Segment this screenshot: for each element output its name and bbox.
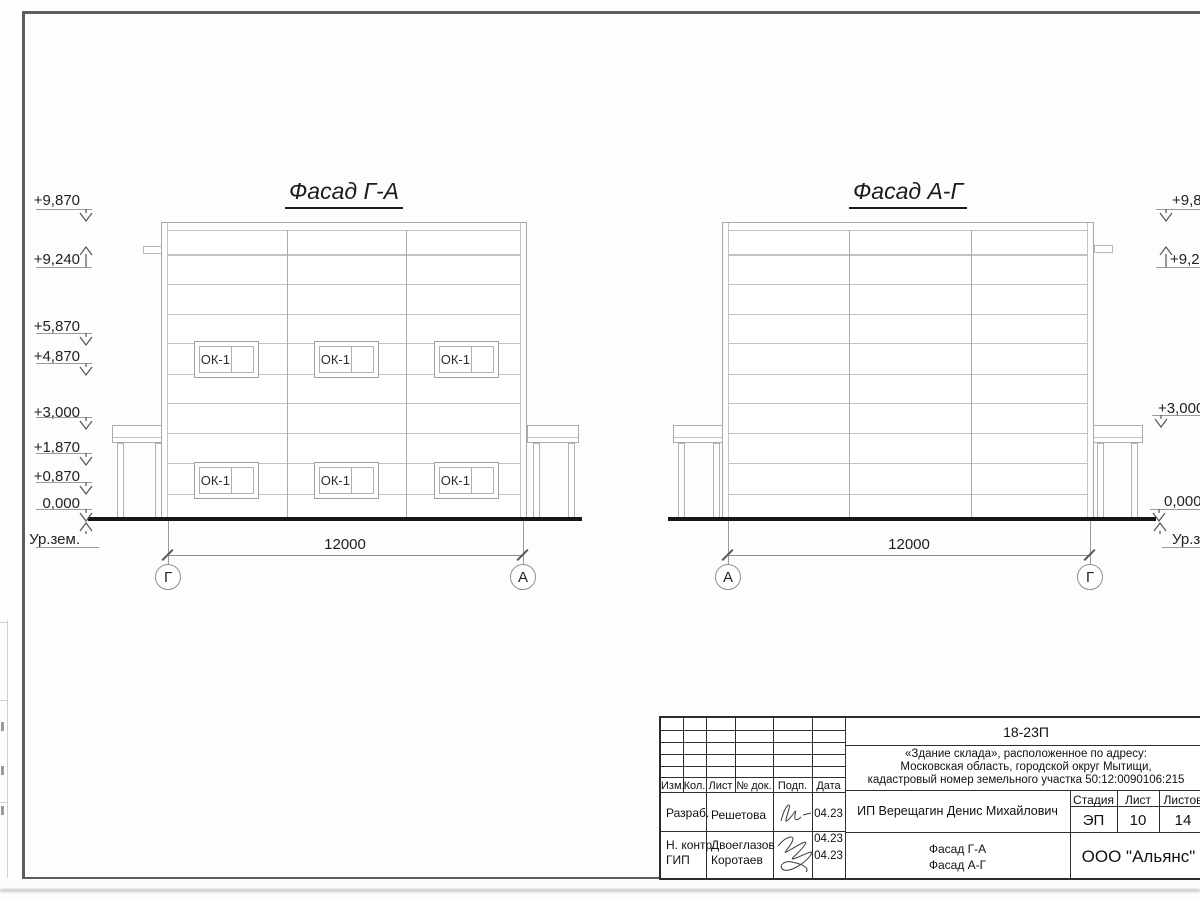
elevation-arrow-down-icon bbox=[1151, 509, 1167, 522]
bay-divider bbox=[971, 230, 972, 518]
wall-edge-line bbox=[1087, 223, 1088, 518]
project-code: 18-23П bbox=[845, 724, 1200, 740]
title-block-line bbox=[845, 745, 1200, 746]
sheet-name-line1: Фасад Г-А bbox=[845, 842, 1070, 856]
title-block-line bbox=[661, 766, 845, 767]
window-label: ОК-1 bbox=[320, 347, 351, 372]
title-block-line bbox=[661, 777, 845, 778]
margin-stamp-line bbox=[0, 622, 8, 623]
elevation-label: 0,000 bbox=[1164, 493, 1200, 510]
col-header-list: Лист bbox=[706, 780, 735, 792]
window-mullion bbox=[471, 347, 472, 372]
elevation-label: Ур.зем. bbox=[1172, 531, 1200, 548]
dimension-text: 12000 bbox=[859, 536, 959, 553]
axis-line bbox=[168, 521, 169, 564]
stage-label: Стадия bbox=[1070, 793, 1117, 807]
title-block-line bbox=[661, 730, 845, 731]
window-label: ОК-1 bbox=[440, 468, 471, 493]
porch-post bbox=[568, 443, 575, 519]
facade-wall-ag bbox=[722, 222, 1094, 519]
col-header-izm: Изм. bbox=[661, 780, 683, 792]
window-mullion bbox=[231, 468, 232, 493]
axis-letter: Г bbox=[1086, 569, 1094, 586]
role-name: Коротаев bbox=[711, 853, 763, 867]
panel-line bbox=[728, 463, 1088, 464]
dimension-line bbox=[168, 555, 523, 556]
axis-circle: Г bbox=[155, 564, 181, 590]
elevation-label: Ур.зем. bbox=[18, 531, 80, 548]
panel-line bbox=[728, 494, 1088, 495]
panel-line bbox=[167, 433, 521, 434]
window: ОК-1 bbox=[314, 462, 379, 499]
role-label: ГИП bbox=[666, 853, 690, 867]
panel-line bbox=[728, 374, 1088, 375]
panel-line bbox=[167, 314, 521, 315]
entrance-canopy bbox=[673, 425, 724, 443]
facade-title-ag: Фасад А-Г bbox=[808, 178, 1008, 209]
wall-edge-line bbox=[520, 223, 521, 518]
client-name: ИП Верещагин Денис Михайлович bbox=[845, 804, 1070, 818]
elevation-arrow-down-icon bbox=[78, 509, 94, 522]
elevation-arrow-down-icon bbox=[78, 363, 94, 376]
organization-name: ООО "Альянс" bbox=[1070, 847, 1200, 867]
window: ОК-1 bbox=[194, 462, 259, 499]
facade-title-ga: Фасад Г-А bbox=[244, 178, 444, 209]
elevation-label: +9,240 bbox=[1170, 251, 1200, 268]
axis-line bbox=[728, 521, 729, 564]
eaves-line bbox=[728, 254, 1088, 256]
window-label: ОК-1 bbox=[200, 468, 231, 493]
panel-line bbox=[167, 403, 521, 404]
elevation-leader bbox=[36, 547, 99, 548]
title-block-line bbox=[661, 742, 845, 743]
porch-post bbox=[1097, 443, 1104, 519]
porch-post bbox=[713, 443, 720, 519]
paper-edge-shadow bbox=[0, 889, 1200, 892]
elevation-label: +9,870 bbox=[1172, 192, 1200, 209]
window-frame: ОК-1 bbox=[199, 346, 254, 373]
elevation-arrow-down-icon bbox=[78, 209, 94, 222]
axis-circle: Г bbox=[1077, 564, 1103, 590]
dimension-text: 12000 bbox=[295, 536, 395, 553]
window: ОК-1 bbox=[194, 341, 259, 378]
parapet-cap-line bbox=[167, 230, 521, 231]
axis-line bbox=[1090, 521, 1091, 564]
margin-stamp-line bbox=[0, 700, 8, 701]
margin-stamp-text-fragment bbox=[1, 806, 4, 815]
panel-line bbox=[728, 314, 1088, 315]
axis-letter: Г bbox=[164, 569, 172, 586]
entrance-canopy bbox=[1092, 425, 1143, 443]
margin-stamp-text-fragment bbox=[1, 766, 4, 775]
col-header-kol: Кол. bbox=[683, 780, 706, 792]
title-block: Изм. Кол. Лист № док. Подп. Дата Разраб.… bbox=[659, 716, 1200, 880]
porch-post bbox=[117, 443, 124, 519]
sheet-label: Лист bbox=[1117, 793, 1159, 807]
window-label: ОК-1 bbox=[440, 347, 471, 372]
window: ОК-1 bbox=[434, 462, 499, 499]
elevation-label: +3,000 bbox=[18, 404, 80, 421]
sheets-label: Листов bbox=[1159, 793, 1200, 807]
margin-stamp-line bbox=[7, 620, 8, 878]
window: ОК-1 bbox=[434, 341, 499, 378]
title-block-line bbox=[845, 790, 1200, 791]
title-block-line bbox=[661, 754, 845, 755]
drawing-sheet: Фасад Г-А ОК-1 ОК-1 bbox=[0, 0, 1200, 900]
title-block-line bbox=[845, 832, 1200, 833]
window-label: ОК-1 bbox=[320, 468, 351, 493]
porch-post bbox=[1131, 443, 1138, 519]
elevation-arrow-up-icon bbox=[78, 246, 94, 268]
ground-line bbox=[88, 517, 582, 521]
porch-post bbox=[678, 443, 685, 519]
wall-edge-line bbox=[728, 223, 729, 518]
window-frame: ОК-1 bbox=[199, 467, 254, 494]
parapet-cap-line bbox=[728, 230, 1088, 231]
dimension-line bbox=[728, 555, 1090, 556]
panel-line bbox=[728, 433, 1088, 434]
sheet-value: 10 bbox=[1117, 812, 1159, 829]
porch-post bbox=[533, 443, 540, 519]
elevation-label: +9,870 bbox=[18, 192, 80, 209]
wall-edge-line bbox=[167, 223, 168, 518]
role-label: Н. контр. bbox=[666, 838, 716, 852]
elevation-arrow-down-icon bbox=[1153, 415, 1169, 428]
margin-stamp-line bbox=[0, 802, 8, 803]
margin-stamp-text-fragment bbox=[1, 722, 4, 731]
axis-circle: А bbox=[715, 564, 741, 590]
facade-title-text: Фасад Г-А bbox=[285, 178, 403, 209]
panel-line bbox=[728, 284, 1088, 285]
col-header-doc: № док. bbox=[735, 780, 773, 792]
axis-letter: А bbox=[723, 569, 733, 586]
stage-value: ЭП bbox=[1070, 812, 1117, 829]
col-header-podp: Подп. bbox=[773, 780, 812, 792]
axis-letter: А bbox=[518, 569, 528, 586]
elevation-arrow-up-icon bbox=[1158, 246, 1174, 268]
ground-line bbox=[668, 517, 1156, 521]
col-header-data: Дата bbox=[812, 780, 845, 792]
window: ОК-1 bbox=[314, 341, 379, 378]
window-mullion bbox=[351, 347, 352, 372]
window-frame: ОК-1 bbox=[439, 467, 494, 494]
axis-line bbox=[523, 521, 524, 564]
title-block-line bbox=[661, 792, 845, 793]
object-line1: «Здание склада», расположенное по адресу… bbox=[845, 748, 1200, 760]
role-label: Разраб. bbox=[666, 806, 709, 820]
role-name: Решетова bbox=[711, 808, 766, 822]
window-frame: ОК-1 bbox=[319, 467, 374, 494]
facade-title-text: Фасад А-Г bbox=[849, 178, 967, 209]
entrance-canopy bbox=[527, 425, 579, 443]
elevation-label: +9,240 bbox=[18, 251, 80, 268]
panel-line bbox=[167, 284, 521, 285]
sheets-value: 14 bbox=[1159, 812, 1200, 829]
signature-icon bbox=[773, 795, 825, 830]
axis-circle: А bbox=[510, 564, 536, 590]
frame-border-top bbox=[22, 11, 1200, 14]
window-label: ОК-1 bbox=[200, 347, 231, 372]
gutter-outlet bbox=[143, 246, 162, 254]
bay-divider bbox=[287, 230, 288, 518]
gutter-outlet bbox=[1094, 245, 1113, 253]
entrance-canopy bbox=[112, 425, 163, 443]
window-mullion bbox=[351, 468, 352, 493]
elevation-arrow-up-icon bbox=[78, 522, 94, 535]
elevation-arrow-down-icon bbox=[78, 482, 94, 495]
elevation-leader bbox=[1162, 547, 1200, 548]
window-mullion bbox=[231, 347, 232, 372]
panel-line bbox=[728, 403, 1088, 404]
elevation-arrow-down-icon bbox=[78, 453, 94, 466]
elevation-arrow-down-icon bbox=[1158, 209, 1174, 222]
object-line3: кадастровый номер земельного участка 50:… bbox=[845, 774, 1200, 786]
window-frame: ОК-1 bbox=[439, 346, 494, 373]
elevation-arrow-down-icon bbox=[78, 417, 94, 430]
bay-divider bbox=[849, 230, 850, 518]
object-line2: Московская область, городской округ Мыти… bbox=[845, 761, 1200, 773]
panel-line bbox=[728, 343, 1088, 344]
window-mullion bbox=[471, 468, 472, 493]
facade-wall-ga: ОК-1 ОК-1 ОК-1 ОК-1 ОК-1 bbox=[161, 222, 527, 519]
bay-divider bbox=[406, 230, 407, 518]
elevation-arrow-up-icon bbox=[1152, 522, 1168, 535]
signature-icon bbox=[766, 832, 824, 878]
elevation-arrow-down-icon bbox=[78, 333, 94, 346]
window-frame: ОК-1 bbox=[319, 346, 374, 373]
sheet-name-line2: Фасад А-Г bbox=[845, 858, 1070, 872]
eaves-line bbox=[167, 254, 521, 256]
